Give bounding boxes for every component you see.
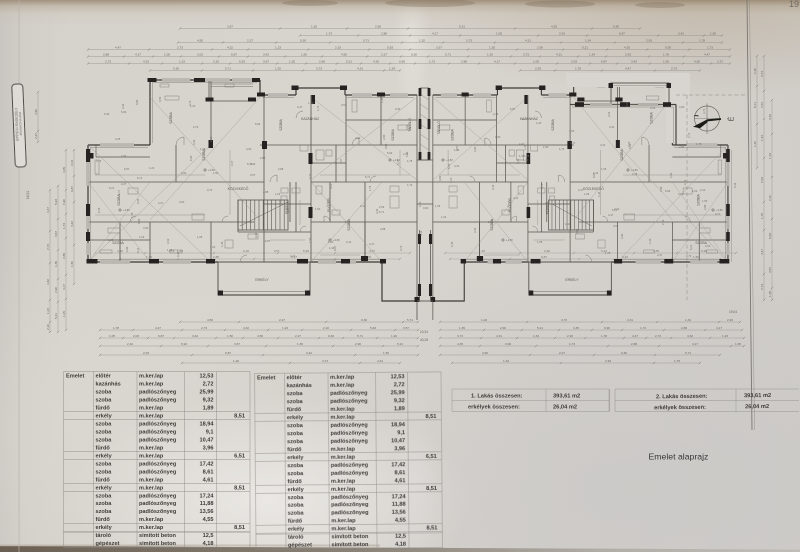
svg-text:m.ker.lap: m.ker.lap — [139, 381, 164, 387]
svg-text:1,78: 1,78 — [663, 52, 669, 56]
svg-text:5,93: 5,93 — [387, 151, 393, 155]
svg-text:4,35: 4,35 — [450, 241, 454, 247]
svg-text:1,89: 1,89 — [203, 405, 214, 411]
svg-text:4,32: 4,32 — [768, 114, 772, 120]
svg-text:1,78: 1,78 — [699, 38, 705, 42]
svg-text:4,35: 4,35 — [491, 184, 495, 190]
svg-text:m.ker.lap: m.ker.lap — [139, 453, 164, 459]
svg-text:5,71: 5,71 — [445, 52, 451, 56]
svg-text:1,05: 1,05 — [62, 311, 66, 317]
svg-text:kazánhás: kazánhás — [96, 381, 121, 387]
svg-text:2,27: 2,27 — [247, 38, 253, 42]
svg-text:1,50: 1,50 — [710, 31, 716, 35]
svg-text:1,50: 1,50 — [702, 199, 708, 203]
svg-text:SZOBA: SZOBA — [650, 112, 654, 124]
svg-text:2,03: 2,03 — [571, 59, 577, 63]
svg-text:3,73: 3,73 — [523, 52, 529, 56]
svg-text:4,55: 4,55 — [395, 518, 406, 524]
svg-text:3,73: 3,73 — [193, 125, 199, 129]
svg-text:2,03: 2,03 — [197, 52, 203, 56]
svg-text:1,78: 1,78 — [674, 359, 680, 363]
svg-text:6,87: 6,87 — [158, 334, 164, 338]
svg-text:padlószőnyeg: padlószőnyeg — [139, 429, 177, 435]
svg-text:KAZÁNHÁZ: KAZÁNHÁZ — [301, 117, 319, 121]
svg-text:1,23: 1,23 — [149, 166, 155, 170]
svg-text:12,53: 12,53 — [200, 373, 214, 379]
svg-text:1,23: 1,23 — [282, 326, 288, 330]
svg-text:1,34: 1,34 — [585, 38, 591, 42]
svg-text:2,03: 2,03 — [133, 334, 139, 338]
svg-text:2,90: 2,90 — [544, 249, 550, 253]
svg-text:1,05: 1,05 — [496, 31, 502, 35]
svg-text:1,35: 1,35 — [459, 326, 465, 330]
svg-text:padlószőnyeg: padlószőnyeg — [331, 502, 369, 508]
svg-text:3,73: 3,73 — [207, 188, 213, 192]
svg-text:2,27: 2,27 — [625, 101, 629, 107]
svg-text:3,42: 3,42 — [473, 227, 477, 233]
svg-text:2,88: 2,88 — [703, 204, 707, 210]
svg-text:4,17: 4,17 — [494, 59, 500, 63]
svg-text:2,10: 2,10 — [127, 342, 133, 346]
svg-text:1,20: 1,20 — [487, 52, 493, 56]
svg-text:fürdő: fürdő — [287, 479, 302, 485]
svg-text:simított beton: simított beton — [331, 534, 369, 540]
svg-text:5,21: 5,21 — [612, 208, 618, 212]
svg-text:3,73: 3,73 — [96, 159, 102, 163]
svg-text:13,56: 13,56 — [392, 510, 406, 516]
svg-text:1,50: 1,50 — [70, 261, 74, 267]
svg-text:3,42: 3,42 — [70, 221, 74, 227]
svg-text:2,90: 2,90 — [125, 246, 129, 252]
svg-text:2,10: 2,10 — [768, 195, 772, 201]
svg-text:4,31: 4,31 — [377, 359, 383, 363]
svg-text:erkély: erkély — [287, 415, 304, 421]
svg-text:8,51: 8,51 — [426, 526, 437, 532]
svg-text:1,35: 1,35 — [768, 291, 772, 297]
svg-text:padlószőnyeg: padlószőnyeg — [139, 421, 177, 427]
svg-text:3,57: 3,57 — [436, 45, 442, 49]
svg-text:4,47: 4,47 — [115, 45, 121, 49]
svg-text:0,90: 0,90 — [604, 326, 610, 330]
svg-text:2,93: 2,93 — [379, 205, 385, 209]
svg-text:25,99: 25,99 — [200, 389, 214, 395]
svg-text:2,93: 2,93 — [605, 359, 611, 363]
svg-text:4,50: 4,50 — [207, 318, 213, 322]
svg-text:12,5: 12,5 — [395, 534, 406, 540]
svg-text:simított beton: simított beton — [139, 533, 177, 539]
svg-text:0,30: 0,30 — [411, 52, 417, 56]
svg-text:SZOBA: SZOBA — [620, 149, 624, 161]
svg-text:1,50: 1,50 — [569, 129, 575, 133]
svg-text:kazánhás: kazánhás — [287, 383, 312, 389]
svg-text:m.ker.lap: m.ker.lap — [330, 375, 355, 381]
svg-text:3,73: 3,73 — [399, 245, 403, 251]
svg-text:+2,80: +2,80 — [506, 238, 513, 242]
svg-text:1,34: 1,34 — [503, 359, 509, 363]
svg-text:0,30: 0,30 — [254, 232, 258, 238]
svg-text:padlószőnyeg: padlószőnyeg — [139, 397, 177, 403]
svg-text:10,47: 10,47 — [200, 437, 214, 443]
svg-text:4,47: 4,47 — [155, 326, 161, 330]
svg-text:1,35: 1,35 — [54, 261, 58, 267]
svg-text:17,24: 17,24 — [200, 493, 215, 499]
svg-text:4,47: 4,47 — [704, 52, 710, 56]
svg-text:3,57: 3,57 — [403, 326, 409, 330]
svg-text:2,10: 2,10 — [700, 188, 706, 192]
svg-text:2,10: 2,10 — [360, 204, 366, 208]
svg-text:1,73: 1,73 — [429, 59, 435, 63]
svg-text:5,21: 5,21 — [516, 158, 520, 164]
svg-text:4,17: 4,17 — [135, 52, 141, 56]
svg-text:12,5: 12,5 — [203, 533, 214, 539]
svg-text:m.ker.lap: m.ker.lap — [330, 407, 355, 413]
svg-text:5,71: 5,71 — [685, 351, 691, 355]
svg-text:18,94: 18,94 — [391, 422, 406, 428]
svg-text:2,93: 2,93 — [405, 124, 409, 130]
svg-text:4,35: 4,35 — [97, 207, 101, 213]
svg-text:0,90: 0,90 — [505, 342, 511, 346]
svg-text:padlószőnyeg: padlószőnyeg — [330, 398, 368, 404]
svg-text:4,47: 4,47 — [578, 188, 584, 192]
svg-text:1,73: 1,73 — [169, 249, 175, 253]
svg-text:fürdő: fürdő — [96, 445, 111, 451]
svg-text:SZOBA: SZOBA — [551, 119, 555, 131]
svg-text:40,28: 40,28 — [420, 338, 428, 342]
svg-text:m.ker.lap: m.ker.lap — [139, 517, 164, 523]
svg-text:9,32: 9,32 — [394, 398, 405, 404]
svg-text:2,93: 2,93 — [727, 318, 733, 322]
svg-text:m.ker.lap: m.ker.lap — [330, 415, 355, 421]
svg-text:6,87: 6,87 — [510, 107, 516, 111]
svg-text:szoba: szoba — [287, 463, 304, 469]
svg-text:+2,80: +2,80 — [393, 158, 400, 162]
svg-text:0,90: 0,90 — [384, 143, 388, 149]
svg-text:1,78: 1,78 — [130, 212, 134, 218]
svg-text:3,42: 3,42 — [375, 208, 379, 214]
svg-text:+2,80: +2,80 — [631, 168, 638, 172]
svg-text:m.ker.lap: m.ker.lap — [331, 478, 356, 484]
svg-text:m.ker.lap: m.ker.lap — [331, 454, 356, 460]
svg-text:gépészet: gépészet — [288, 543, 312, 549]
svg-text:5,21: 5,21 — [397, 342, 403, 346]
svg-text:1,20: 1,20 — [275, 66, 281, 70]
svg-text:m.ker.lap: m.ker.lap — [139, 485, 164, 491]
svg-text:SZOBA: SZOBA — [279, 119, 283, 131]
svg-text:padlószőnyeg: padlószőnyeg — [331, 470, 369, 476]
svg-text:1,50: 1,50 — [301, 52, 307, 56]
svg-text:1,23: 1,23 — [139, 235, 145, 239]
svg-text:szoba: szoba — [96, 469, 113, 475]
svg-text:2,93: 2,93 — [535, 66, 541, 70]
svg-text:4,17: 4,17 — [692, 342, 698, 346]
svg-text:erkély: erkély — [96, 525, 113, 531]
svg-text:4,32: 4,32 — [609, 125, 615, 129]
svg-text:1,35: 1,35 — [489, 45, 495, 49]
svg-text:1,20: 1,20 — [523, 158, 529, 162]
svg-text:1,20: 1,20 — [391, 334, 397, 338]
svg-text:4,32: 4,32 — [246, 147, 252, 151]
svg-text:9,1: 9,1 — [206, 429, 214, 435]
svg-text:2,90: 2,90 — [620, 233, 624, 239]
svg-text:1,05: 1,05 — [584, 192, 590, 196]
svg-text:4,32: 4,32 — [143, 59, 149, 63]
svg-text:4,31: 4,31 — [346, 240, 352, 244]
svg-text:3,57: 3,57 — [768, 267, 772, 273]
svg-text:erkélyek összesen:: erkélyek összesen: — [468, 404, 520, 410]
svg-text:szoba: szoba — [96, 509, 113, 515]
svg-text:4,17: 4,17 — [570, 141, 576, 145]
svg-text:szoba: szoba — [96, 389, 113, 395]
svg-text:1,23: 1,23 — [275, 192, 281, 196]
svg-text:szoba: szoba — [287, 423, 304, 429]
svg-text:előtér: előtér — [287, 375, 303, 381]
svg-text:2,90: 2,90 — [319, 59, 325, 63]
svg-text:6,87: 6,87 — [601, 59, 607, 63]
svg-text:padlószőnyeg: padlószőnyeg — [331, 510, 369, 516]
svg-text:3,73: 3,73 — [466, 38, 472, 42]
svg-text:1,50: 1,50 — [663, 59, 669, 63]
svg-text:4,61: 4,61 — [203, 477, 214, 483]
svg-text:1,35: 1,35 — [537, 240, 543, 244]
svg-text:5,21: 5,21 — [329, 183, 333, 189]
svg-text:1,34: 1,34 — [760, 135, 764, 141]
svg-text:1,78: 1,78 — [601, 334, 607, 338]
svg-text:4,31: 4,31 — [627, 318, 633, 322]
svg-text:2,88: 2,88 — [380, 227, 386, 231]
svg-text:1,34: 1,34 — [441, 215, 447, 219]
svg-text:5,93: 5,93 — [768, 233, 772, 239]
svg-text:padlószőnyeg: padlószőnyeg — [330, 390, 368, 396]
svg-text:padlószőnyeg: padlószőnyeg — [139, 461, 177, 467]
svg-text:5,21: 5,21 — [689, 244, 693, 250]
svg-text:0,30: 0,30 — [395, 107, 401, 111]
svg-text:4,50: 4,50 — [482, 351, 488, 355]
svg-text:4,35: 4,35 — [624, 45, 630, 49]
svg-text:2,27: 2,27 — [121, 182, 127, 186]
svg-text:4,50: 4,50 — [613, 224, 619, 228]
svg-text:1,05: 1,05 — [200, 147, 206, 151]
svg-text:4,47: 4,47 — [608, 213, 614, 217]
svg-text:szoba: szoba — [288, 503, 305, 509]
svg-text:1,73: 1,73 — [316, 105, 320, 111]
svg-text:1. Lakás összesen:: 1. Lakás összesen: — [471, 394, 523, 400]
svg-text:1,23: 1,23 — [768, 153, 772, 159]
svg-text:1,05: 1,05 — [533, 59, 539, 63]
svg-text:fürdő: fürdő — [96, 477, 111, 483]
svg-text:padlószőnyeg: padlószőnyeg — [331, 430, 369, 436]
svg-text:4,31: 4,31 — [496, 334, 502, 338]
svg-text:1,23: 1,23 — [275, 45, 281, 49]
svg-text:1,05: 1,05 — [109, 334, 115, 338]
svg-text:szoba: szoba — [96, 397, 113, 403]
svg-text:szoba: szoba — [96, 493, 113, 499]
svg-text:m.ker.lap: m.ker.lap — [139, 445, 164, 451]
svg-text:4,50: 4,50 — [705, 244, 711, 248]
svg-text:1,35: 1,35 — [380, 97, 384, 103]
svg-text:2,93: 2,93 — [625, 52, 631, 56]
svg-text:1,35: 1,35 — [311, 24, 317, 28]
svg-text:1,05: 1,05 — [197, 235, 203, 239]
svg-text:4,31: 4,31 — [447, 163, 451, 169]
svg-text:1,78: 1,78 — [696, 142, 702, 146]
svg-text:tároló: tároló — [288, 535, 304, 541]
svg-text:0,30: 0,30 — [621, 351, 627, 355]
svg-text:Emelet: Emelet — [66, 374, 84, 380]
svg-text:26,04 m2: 26,04 m2 — [553, 404, 577, 410]
svg-text:3,42: 3,42 — [306, 351, 312, 355]
svg-text:4,17: 4,17 — [62, 284, 66, 290]
svg-text:m.ker.lap: m.ker.lap — [139, 405, 164, 411]
svg-text:4,50: 4,50 — [143, 226, 149, 230]
svg-text:1,78: 1,78 — [760, 213, 764, 219]
svg-text:3,73: 3,73 — [322, 359, 328, 363]
svg-text:szoba: szoba — [287, 431, 304, 437]
svg-text:4,17: 4,17 — [432, 31, 438, 35]
svg-text:17,24: 17,24 — [392, 494, 407, 500]
svg-text:Emelet alaprajz: Emelet alaprajz — [649, 452, 709, 462]
svg-text:5,71: 5,71 — [753, 102, 757, 108]
svg-text:1,50: 1,50 — [543, 145, 549, 149]
svg-text:szoba: szoba — [288, 511, 305, 517]
svg-text:1,23: 1,23 — [722, 334, 728, 338]
svg-text:1,20: 1,20 — [536, 121, 542, 125]
svg-text:3,73: 3,73 — [760, 71, 764, 77]
svg-text:padlószőnyeg: padlószőnyeg — [331, 438, 369, 444]
svg-text:12,53: 12,53 — [391, 374, 405, 380]
svg-text:2,10: 2,10 — [449, 177, 453, 183]
svg-text:3,57: 3,57 — [263, 59, 269, 63]
svg-text:4,32: 4,32 — [687, 334, 693, 338]
svg-text:fürdő: fürdő — [288, 519, 303, 525]
svg-text:5,21: 5,21 — [459, 24, 465, 28]
svg-text:4,35: 4,35 — [551, 24, 557, 28]
svg-text:fürdő: fürdő — [96, 405, 111, 411]
svg-text:1,34: 1,34 — [685, 318, 691, 322]
svg-text:26,04 m2: 26,04 m2 — [745, 404, 769, 410]
svg-text:padlószőnyeg: padlószőnyeg — [139, 389, 177, 395]
svg-text:TÁROLÓ: TÁROLÓ — [436, 121, 441, 135]
svg-text:5,71: 5,71 — [540, 183, 544, 189]
svg-text:4,50: 4,50 — [341, 52, 347, 56]
svg-text:ERKÉLY: ERKÉLY — [255, 277, 269, 282]
svg-text:1,78: 1,78 — [407, 159, 413, 163]
svg-text:1,23: 1,23 — [210, 245, 216, 249]
svg-text:6,51: 6,51 — [426, 454, 437, 460]
svg-text:2,73: 2,73 — [177, 45, 183, 49]
svg-text:2,27: 2,27 — [158, 201, 164, 205]
svg-text:1,34: 1,34 — [490, 218, 494, 224]
svg-text:4,50: 4,50 — [34, 109, 38, 115]
svg-text:SZOBA: SZOBA — [169, 112, 173, 124]
svg-text:1,35: 1,35 — [289, 59, 295, 63]
svg-text:4,47: 4,47 — [632, 334, 638, 338]
svg-text:erkély: erkély — [287, 455, 304, 461]
svg-text:1,05: 1,05 — [435, 204, 441, 208]
svg-text:5,93: 5,93 — [303, 249, 309, 253]
svg-text:4,47: 4,47 — [625, 66, 631, 70]
svg-text:5,93: 5,93 — [370, 326, 376, 330]
svg-text:18,94: 18,94 — [200, 421, 215, 427]
svg-text:2,72: 2,72 — [203, 381, 214, 387]
svg-text:1,73: 1,73 — [326, 31, 332, 35]
svg-text:2,10: 2,10 — [209, 136, 213, 142]
svg-text:0,90: 0,90 — [613, 24, 619, 28]
svg-text:m.ker.lap: m.ker.lap — [139, 477, 164, 483]
svg-text:8,51: 8,51 — [234, 525, 245, 531]
svg-text:17,42: 17,42 — [200, 461, 214, 467]
svg-text:393,61 m2: 393,61 m2 — [744, 393, 771, 399]
svg-text:3,42: 3,42 — [192, 334, 198, 338]
svg-text:2,03: 2,03 — [575, 228, 579, 234]
svg-text:8,51: 8,51 — [234, 485, 245, 491]
svg-text:3,57: 3,57 — [54, 231, 58, 237]
svg-text:4,31: 4,31 — [556, 52, 562, 56]
svg-text:1,34: 1,34 — [593, 171, 599, 175]
svg-text:4,47: 4,47 — [519, 142, 525, 146]
svg-text:4,35: 4,35 — [573, 326, 579, 330]
svg-text:5,93: 5,93 — [665, 189, 671, 193]
svg-text:szoba: szoba — [288, 495, 305, 501]
svg-text:0,30: 0,30 — [328, 334, 334, 338]
svg-text:11,88: 11,88 — [392, 502, 406, 508]
svg-text:erkély: erkély — [96, 485, 113, 491]
svg-text:szoba: szoba — [287, 391, 304, 397]
svg-text:4,47: 4,47 — [46, 207, 50, 213]
svg-text:2,90: 2,90 — [54, 287, 58, 293]
svg-text:KÖZLEKEDŐ: KÖZLEKEDŐ — [583, 186, 604, 191]
svg-text:padlószőnyeg: padlószőnyeg — [330, 422, 368, 428]
svg-text:1,23: 1,23 — [46, 308, 50, 314]
svg-text:2,27: 2,27 — [522, 117, 528, 121]
svg-text:2,73: 2,73 — [683, 179, 687, 185]
svg-text:2,03: 2,03 — [143, 351, 149, 355]
svg-text:m.ker.lap: m.ker.lap — [139, 525, 164, 531]
svg-text:2,88: 2,88 — [659, 186, 663, 192]
svg-text:5,21: 5,21 — [136, 247, 140, 253]
svg-text:2,27: 2,27 — [295, 334, 301, 338]
svg-text:4,31: 4,31 — [513, 196, 519, 200]
svg-text:6,87: 6,87 — [231, 52, 237, 56]
svg-text:5,21: 5,21 — [346, 59, 352, 63]
svg-text:2,93: 2,93 — [679, 145, 685, 149]
svg-text:padlószőnyeg: padlószőnyeg — [139, 469, 177, 475]
svg-text:2,03: 2,03 — [70, 160, 74, 166]
svg-text:2,10: 2,10 — [335, 45, 341, 49]
svg-text:2,73: 2,73 — [201, 326, 207, 330]
svg-text:6,87: 6,87 — [225, 351, 231, 355]
svg-text:erkély: erkély — [96, 413, 113, 419]
svg-text:2,73: 2,73 — [686, 254, 692, 258]
svg-text:5,93: 5,93 — [250, 162, 256, 166]
svg-text:2,27: 2,27 — [230, 160, 234, 166]
svg-text:2,88: 2,88 — [631, 342, 637, 346]
svg-text:2,72: 2,72 — [394, 382, 405, 388]
svg-text:ELŐTÉR: ELŐTÉR — [326, 198, 331, 212]
svg-text:m.ker.lap: m.ker.lap — [331, 446, 356, 452]
svg-text:8,51: 8,51 — [425, 414, 436, 420]
svg-text:2,10: 2,10 — [243, 249, 249, 253]
svg-text:4,50: 4,50 — [197, 38, 203, 42]
svg-text:1,73: 1,73 — [308, 101, 314, 105]
svg-text:0,30: 0,30 — [173, 66, 179, 70]
svg-text:2,88: 2,88 — [461, 59, 467, 63]
svg-text:1,35: 1,35 — [632, 172, 638, 176]
svg-text:fürdő: fürdő — [96, 517, 111, 523]
svg-text:2,93: 2,93 — [646, 38, 652, 42]
svg-text:2,27: 2,27 — [279, 318, 285, 322]
svg-text:0,30: 0,30 — [176, 251, 180, 257]
svg-text:3,57: 3,57 — [227, 24, 233, 28]
